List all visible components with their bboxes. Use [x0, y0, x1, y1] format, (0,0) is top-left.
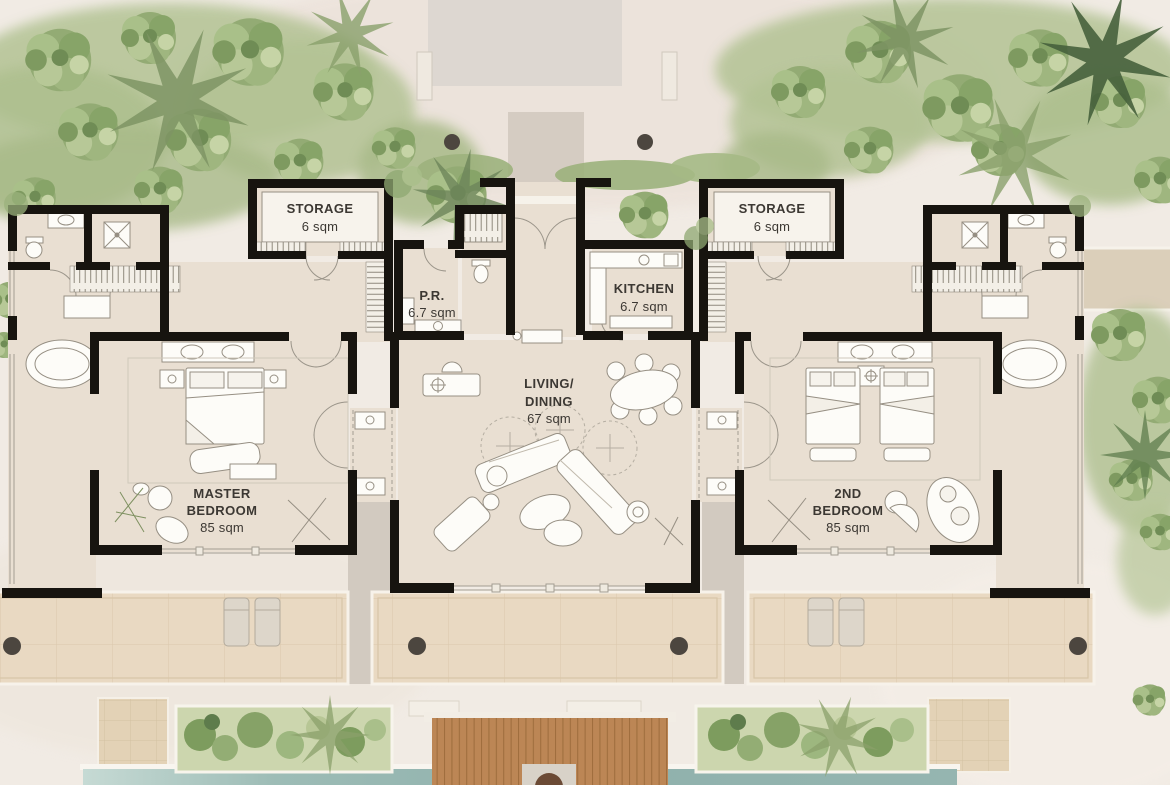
master-bench — [230, 464, 276, 479]
side-table — [133, 483, 149, 495]
floor-entry — [514, 182, 576, 337]
kitchen-island — [610, 316, 672, 328]
label-storage-right-name: STORAGE — [739, 201, 806, 216]
toilet — [26, 242, 42, 258]
nightstand — [262, 370, 286, 388]
label-living-line2: DINING — [525, 394, 573, 409]
label-storage-left-area: 6 sqm — [302, 219, 338, 234]
toilet — [1050, 242, 1066, 258]
label-storage-left-name: STORAGE — [287, 201, 354, 216]
terrace-center — [372, 592, 723, 684]
console-table — [355, 412, 385, 429]
console-table — [707, 478, 737, 495]
label-kitchen-area: 6.7 sqm — [620, 299, 668, 314]
kitchen-counter-left — [590, 268, 606, 324]
label-powder-room-name: P.R. — [419, 288, 444, 303]
entry-console — [522, 330, 562, 343]
console-table — [707, 412, 737, 429]
dining-set — [607, 354, 682, 425]
timber-deck — [409, 701, 676, 785]
bed-bench — [810, 448, 856, 461]
dressing-island — [64, 296, 110, 318]
twin-bed-2 — [880, 368, 934, 444]
bed-bench — [884, 448, 930, 461]
label-living-line1: LIVING/ — [524, 376, 574, 391]
bench — [662, 52, 677, 100]
column — [637, 134, 653, 150]
linen-shelf — [464, 212, 502, 242]
label-living-area: 67 sqm — [527, 411, 571, 426]
stone-pad-top — [428, 0, 622, 86]
ottoman — [544, 520, 582, 546]
storage-shelving — [714, 192, 830, 242]
terrace-left — [0, 592, 348, 684]
label-second-line1: 2ND — [834, 486, 861, 501]
label-second-line2: BEDROOM — [813, 503, 884, 518]
label-second-area: 85 sqm — [826, 520, 870, 535]
label-powder-room-area: 6.7 sqm — [408, 305, 456, 320]
dressing-island — [982, 296, 1028, 318]
site-plan: STORAGE 6 sqm STORAGE 6 sqm P.R. 6.7 sqm… — [0, 0, 1170, 785]
label-master-line2: BEDROOM — [187, 503, 258, 518]
round-chair — [148, 486, 172, 510]
label-storage-right-area: 6 sqm — [754, 219, 790, 234]
terrace-right — [748, 592, 1094, 684]
bench — [417, 52, 432, 100]
entry-threshold — [514, 196, 576, 204]
side-table — [627, 501, 649, 523]
column — [408, 637, 426, 655]
label-master-area: 85 sqm — [200, 520, 244, 535]
storage-shelving — [262, 192, 378, 242]
nightstand — [160, 370, 184, 388]
wc-toilet — [474, 265, 488, 283]
side-table — [483, 494, 499, 510]
master-bed — [186, 368, 264, 444]
stone-pad-right — [928, 698, 1010, 772]
column — [3, 637, 21, 655]
label-master-line1: MASTER — [193, 486, 250, 501]
column — [670, 637, 688, 655]
column — [444, 134, 460, 150]
column — [1069, 637, 1087, 655]
label-kitchen-name: KITCHEN — [614, 281, 675, 296]
floor-plan-rendering: STORAGE 6 sqm STORAGE 6 sqm P.R. 6.7 sqm… — [0, 0, 1170, 785]
stone-pad-left — [98, 698, 168, 772]
console-table — [355, 478, 385, 495]
twin-bed-1 — [806, 368, 860, 444]
pouf — [487, 466, 507, 486]
